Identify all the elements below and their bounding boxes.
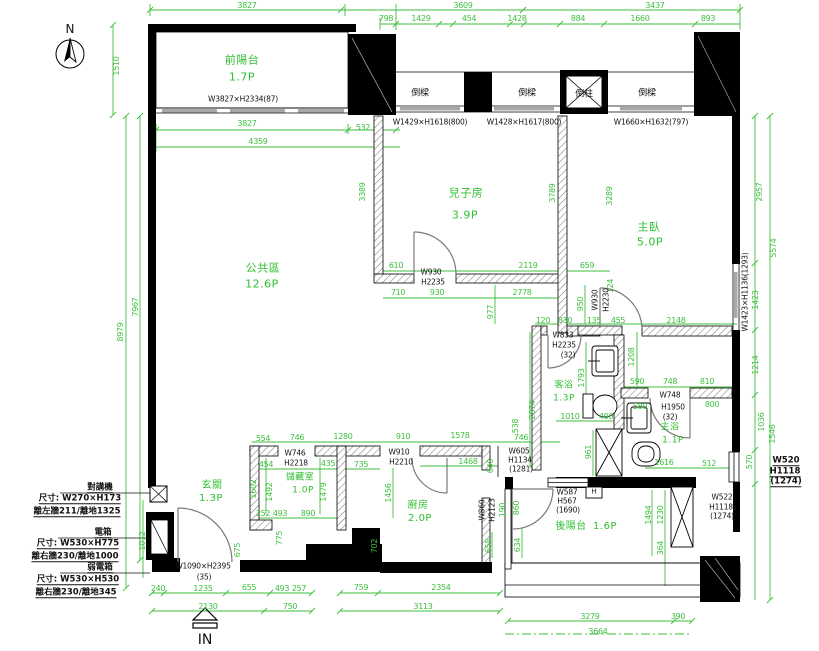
dim-label: 746	[290, 434, 304, 442]
dim-label: 3279	[580, 613, 599, 621]
dim-label: 3827	[237, 120, 256, 128]
dim-label: 659	[580, 262, 594, 270]
dim-label: 2354	[431, 584, 450, 592]
dim-label: 2148	[666, 317, 685, 325]
dim-label: 3289	[606, 186, 614, 205]
dim-label: 2119	[518, 262, 537, 270]
spec-label: W605	[509, 447, 530, 455]
spec-label: (32)	[663, 413, 678, 421]
spec-label: (1690)	[556, 506, 580, 514]
dim-label: 8979	[117, 322, 125, 341]
dim-label: 2778	[512, 289, 531, 297]
dim-label: 7967	[132, 297, 140, 316]
dim-label: 590	[630, 378, 644, 386]
spec-label: W910	[389, 448, 410, 456]
spec-label: W748	[660, 391, 681, 399]
dim-label: 798	[379, 15, 393, 23]
dim-label: 3827	[237, 2, 256, 10]
room-label-storage: 儲藏室	[286, 474, 315, 483]
entry-direction-label: IN	[198, 633, 213, 647]
dim-label: 890	[301, 510, 315, 518]
dim-label: 1235	[193, 585, 212, 593]
spec-label: H2230	[602, 288, 610, 312]
spec-label: H2235	[421, 278, 445, 286]
dim-label: 830	[558, 317, 572, 325]
spec-label: W587	[557, 488, 578, 496]
dim-label: 3437	[645, 2, 664, 10]
dim-label: 5574	[770, 238, 778, 257]
dim-label: 950	[577, 297, 585, 311]
dim-label: 454	[259, 461, 273, 469]
spec-label: H1118	[709, 503, 733, 511]
dim-label: 570	[746, 455, 754, 469]
room-label: 1.3P	[553, 395, 575, 404]
dim-label: 759	[354, 584, 368, 592]
compass-north-label: N	[66, 23, 75, 35]
dim-label: 1578	[450, 432, 469, 440]
room-label-master-bedroom: 主臥	[638, 222, 661, 233]
dim-label: 930	[430, 289, 444, 297]
note-label: 尺寸: W530×H775	[37, 539, 119, 549]
spec-label: W860	[478, 500, 486, 521]
dim-label: 658	[485, 539, 493, 553]
room-label: 1.1P	[662, 437, 684, 446]
dim-label: 634	[514, 538, 522, 552]
room-label: 1.3P	[199, 494, 223, 504]
dim-label: 3664	[588, 628, 607, 636]
dim-label: 3609	[453, 2, 472, 10]
room-label: 1.6P	[593, 522, 617, 532]
dim-label: 640	[487, 459, 495, 473]
dim-label: 860	[513, 501, 521, 515]
dim-label: 1660	[630, 15, 649, 23]
room-label-front-balcony: 前陽台	[225, 55, 260, 66]
note-lv-box-title: 弱電箱	[87, 563, 113, 573]
room-label-master-bath: 主浴	[660, 424, 679, 433]
spec-label: H2235	[552, 341, 576, 349]
note-label: 尺寸: W530×H530	[37, 575, 119, 585]
spec-label: H2123	[488, 498, 496, 522]
dim-label: 1479	[320, 482, 328, 501]
spec-label: W1660×H1632(797)	[614, 118, 688, 126]
dim-label: 1010	[560, 413, 579, 421]
dim-label: 810	[700, 378, 714, 386]
dim-label: 750	[283, 603, 297, 611]
h-box-label: H	[591, 489, 596, 496]
spec-label: W1428×H1617(800)	[487, 118, 561, 126]
dim-label: 1012	[139, 531, 147, 550]
dim-label: 1208	[628, 347, 636, 366]
dim-label: 1468	[458, 458, 477, 466]
dim-label: 1456	[385, 483, 393, 502]
dim-label: 1546	[769, 424, 777, 443]
dim-label: 1492	[266, 482, 274, 501]
room-label-sons-room: 兒子房	[449, 188, 484, 199]
dim-label: 580	[633, 403, 647, 411]
spec-label: 倒樑	[411, 90, 429, 99]
dim-label: 554	[256, 435, 270, 443]
dim-label: 2957	[756, 182, 764, 201]
dim-label: 1280	[333, 433, 352, 441]
dim-label: 775	[276, 531, 284, 545]
dim-label: 746	[514, 434, 528, 442]
room-label-public-area: 公共區	[246, 263, 281, 274]
spec-label: 倒樑	[518, 90, 536, 99]
dim-label: 675	[234, 543, 242, 557]
spec-label: W833	[553, 331, 574, 339]
spec-label: (1274)	[710, 512, 734, 520]
floor-plan-canvas: 3827360934377981429454142888416608931510…	[0, 0, 819, 651]
dim-label: 2130	[198, 603, 217, 611]
spec-label: (32)	[561, 351, 576, 359]
dim-label: 435	[321, 460, 335, 468]
dim-label: 702	[371, 539, 379, 553]
spec-label: W522	[712, 493, 733, 501]
dim-label: 1602	[250, 479, 258, 498]
dim-label: 1616	[654, 459, 673, 467]
dim-label: 910	[396, 433, 410, 441]
dim-label: 3389	[359, 182, 367, 201]
dim-label: 800	[705, 401, 719, 409]
note-label: W520	[772, 456, 799, 466]
room-label: 5.0P	[637, 237, 663, 248]
spec-label: W1090×H2395	[175, 562, 230, 570]
spec-label: W1423×H1136(1293)	[741, 252, 749, 331]
room-label-guest-bath: 客浴	[554, 382, 573, 391]
dim-label: 1428	[507, 15, 526, 23]
room-label-kitchen: 廚房	[408, 501, 429, 511]
compass-icon	[56, 38, 84, 68]
guest-bath-toilet-tank-icon	[583, 394, 593, 418]
dim-label: 3113	[413, 603, 432, 611]
dim-label: 735	[354, 461, 368, 469]
spec-label: 倒樑	[638, 90, 656, 99]
note-label: 離右牆230/離地1000	[31, 552, 118, 562]
dim-label: 4359	[248, 138, 267, 146]
dim-label: 1036	[758, 412, 766, 431]
note-intercom-title: 對講機	[87, 483, 113, 493]
note-label: 尺寸: W270×H173	[39, 494, 121, 504]
room-label: 12.6P	[245, 279, 279, 290]
spec-label: 倒柱	[575, 91, 593, 100]
dim-label: 961	[585, 445, 593, 459]
dim-label: 257	[292, 585, 306, 593]
dim-label: 1429	[411, 15, 430, 23]
note-label: 離左牆211/離地1325	[33, 507, 120, 517]
dim-label: 748	[663, 378, 677, 386]
room-label-entry: 玄關	[202, 481, 223, 491]
spec-label: H1950	[661, 403, 685, 411]
room-label: 1.7P	[229, 72, 255, 83]
spec-label: H2218	[284, 459, 308, 467]
dim-label: 364	[657, 541, 665, 555]
dim-label: 252	[256, 510, 270, 518]
dim-label: 610	[389, 262, 403, 270]
spec-label: H1134	[508, 456, 532, 464]
dim-label: 710	[391, 289, 405, 297]
dim-label: 893	[701, 15, 715, 23]
dim-label: 3789	[549, 183, 557, 202]
dim-label: 1230	[657, 505, 665, 524]
dim-label: 1423	[752, 290, 760, 309]
spec-label: H2210	[389, 458, 413, 466]
room-label: 1.0P	[292, 487, 314, 496]
spec-label: W930	[421, 268, 442, 276]
dim-label: 120	[536, 317, 550, 325]
room-label: 3.9P	[452, 210, 478, 221]
dim-label: 1510	[113, 56, 121, 75]
room-label: 2.0P	[408, 514, 432, 524]
dim-label: 390	[671, 613, 685, 621]
dim-label: 538	[512, 419, 520, 433]
note-label: 離右牆230/離地345	[35, 588, 116, 598]
spec-label: H567	[557, 497, 576, 505]
room-label-rear-balcony: 後陽台	[555, 522, 587, 532]
note-power-box-title: 電箱	[94, 528, 111, 538]
dim-label: 400	[599, 413, 613, 421]
dim-label: 1214	[752, 355, 760, 374]
dim-label: 135	[587, 317, 601, 325]
spec-label: W746	[285, 449, 306, 457]
dim-label: 884	[571, 15, 585, 23]
dim-label: 454	[462, 15, 476, 23]
dim-label: 2874	[529, 400, 537, 419]
spec-label: (35)	[197, 573, 212, 581]
dim-label: 493	[273, 510, 287, 518]
dim-label: 977	[487, 305, 495, 319]
dim-label: 532	[356, 124, 370, 132]
note-label: (1274)	[770, 477, 801, 487]
dim-label: 1494	[645, 505, 653, 524]
dim-label: 493	[275, 585, 289, 593]
spec-label: W1429×H1618(800)	[393, 118, 467, 126]
spec-label: W3827×H2334(87)	[208, 95, 278, 103]
dim-label: 190	[499, 503, 507, 517]
dim-label: 1793	[578, 368, 586, 387]
dim-label: 455	[611, 317, 625, 325]
dim-label: 655	[242, 584, 256, 592]
spec-label: W930	[591, 290, 599, 311]
dim-label: 240	[151, 585, 165, 593]
dim-label: 512	[702, 460, 716, 468]
spec-label: (1281)	[509, 465, 533, 473]
